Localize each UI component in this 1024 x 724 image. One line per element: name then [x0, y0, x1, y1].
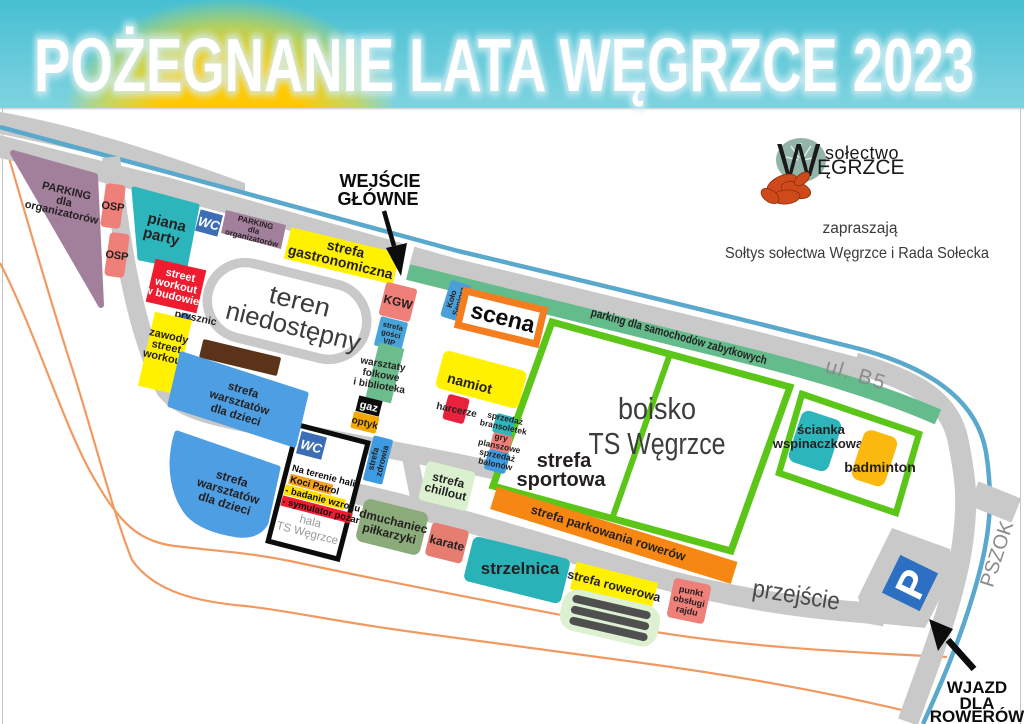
svg-text:Sołtys sołectwa Węgrzce i Rada: Sołtys sołectwa Węgrzce i Rada Sołecka: [725, 245, 989, 262]
svg-text:WEJŚCIE: WEJŚCIE: [339, 170, 420, 191]
svg-text:GŁÓWNE: GŁÓWNE: [338, 188, 419, 209]
svg-text:sportowa: sportowa: [517, 469, 607, 491]
svg-text:TS Węgrzce: TS Węgrzce: [589, 426, 726, 461]
svg-text:ROWERÓW: ROWERÓW: [930, 707, 1024, 724]
svg-text:zapraszają: zapraszają: [823, 220, 898, 237]
svg-text:ścianka: ścianka: [797, 422, 845, 437]
svg-text:badminton: badminton: [844, 459, 916, 475]
svg-text:strzelnica: strzelnica: [481, 559, 560, 578]
svg-text:boisko: boisko: [618, 391, 696, 426]
svg-text:POŻEGNANIE LATA WĘGRZCE 2023: POŻEGNANIE LATA WĘGRZCE 2023: [34, 23, 974, 108]
svg-text:wspinaczkowa: wspinaczkowa: [772, 436, 864, 451]
svg-text:ĘGRZCE: ĘGRZCE: [817, 156, 905, 179]
